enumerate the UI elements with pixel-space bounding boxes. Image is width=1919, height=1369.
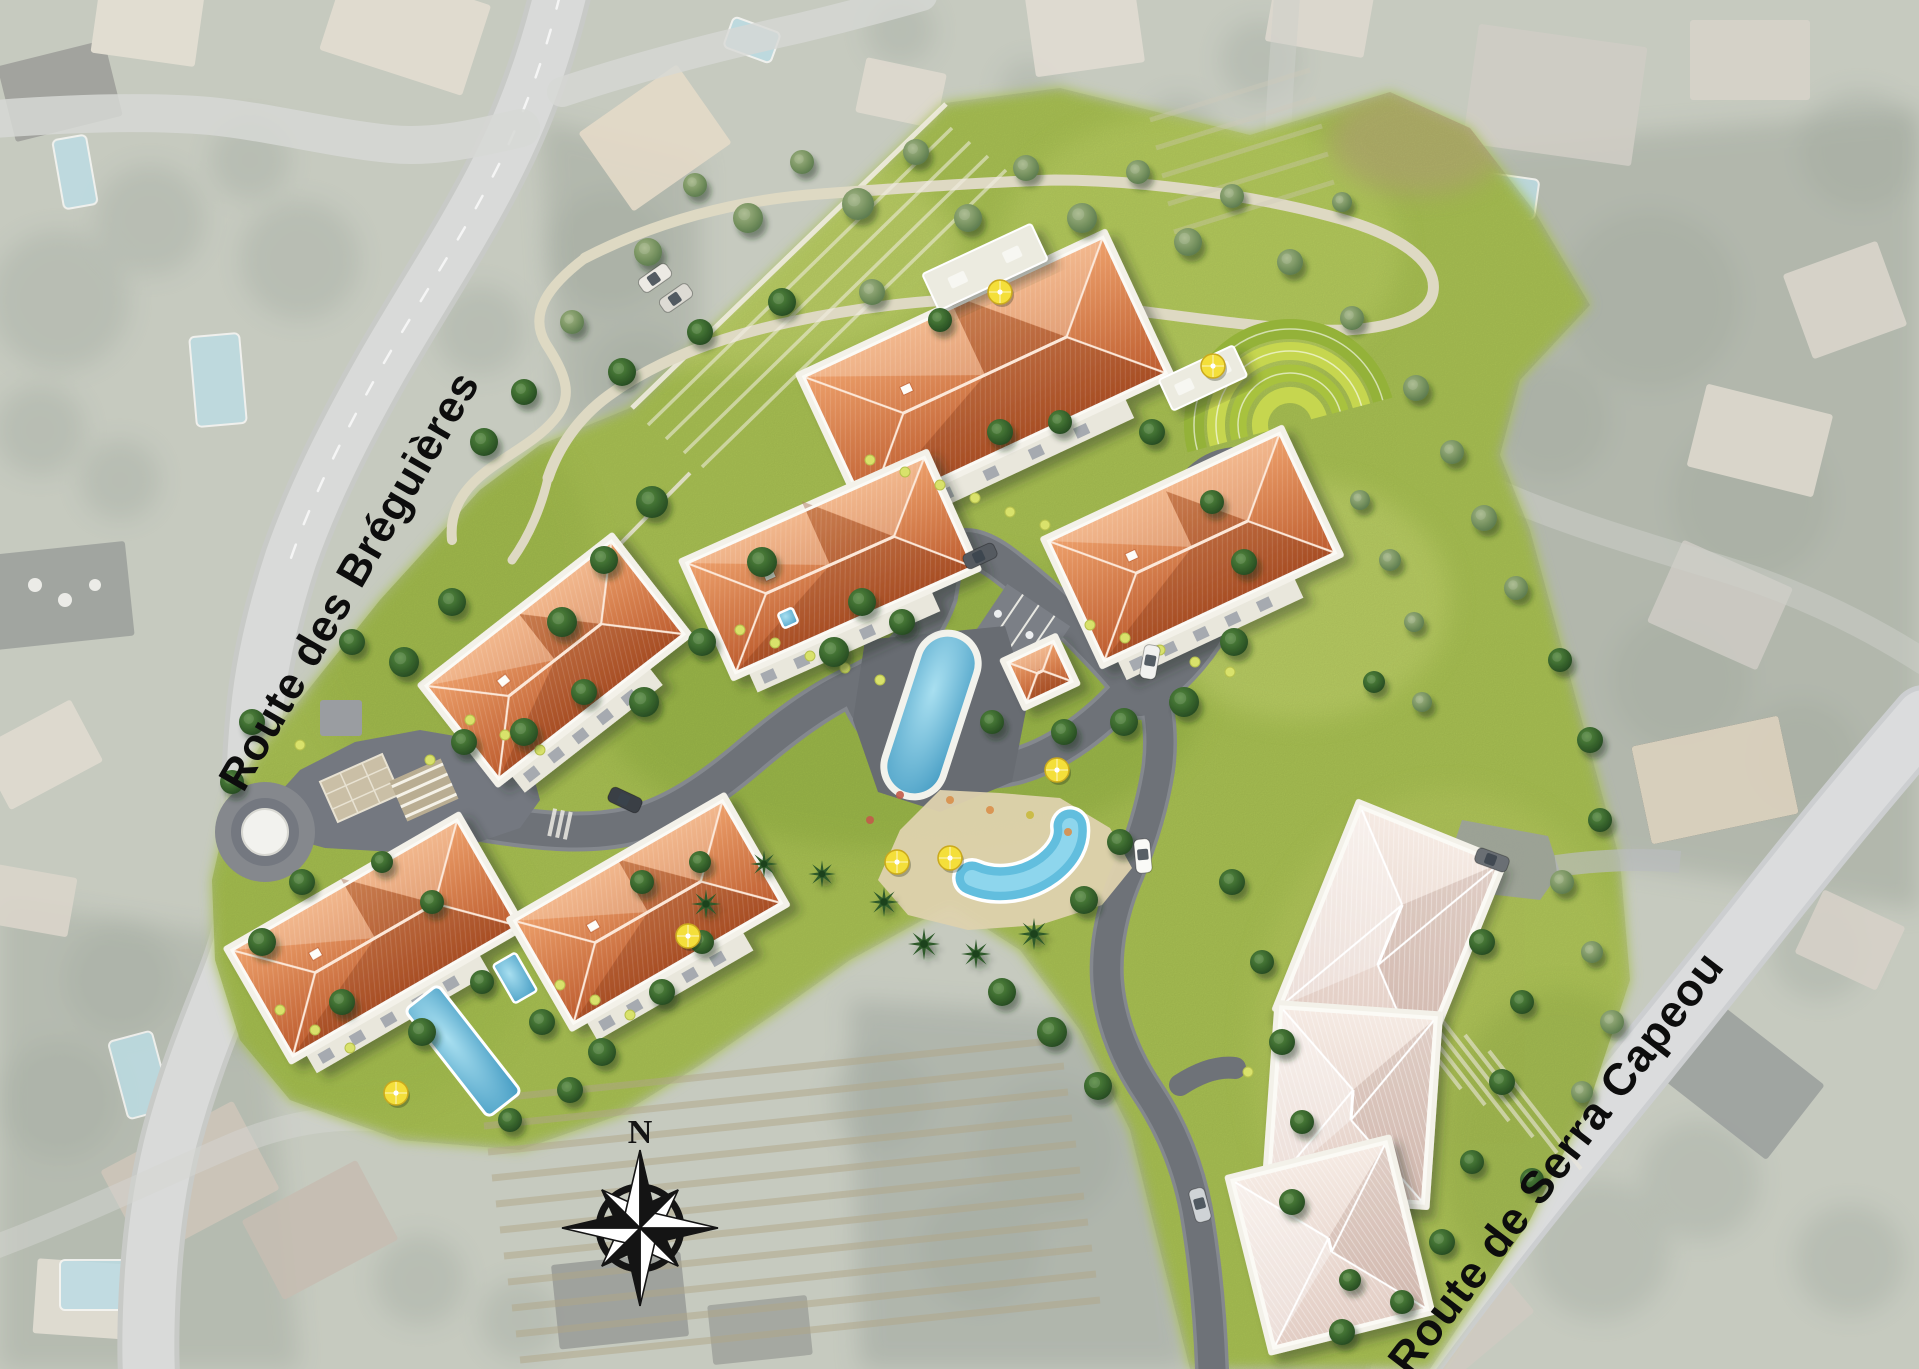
tree-highlight [1224, 188, 1234, 198]
shrub [1190, 657, 1200, 667]
car [1134, 838, 1153, 873]
tree-highlight [1274, 1034, 1284, 1044]
tree-highlight [253, 933, 264, 944]
shrub [345, 1043, 355, 1053]
tree-highlight [375, 855, 384, 864]
tree-highlight [595, 551, 606, 562]
driveway-g-east [1556, 860, 1680, 866]
flower-bed [1064, 828, 1072, 836]
tree-highlight [639, 243, 650, 254]
tree-highlight [1476, 510, 1486, 520]
shrub [625, 1010, 635, 1020]
tree-highlight [1367, 675, 1376, 684]
tree-highlight [984, 714, 994, 724]
tree-highlight [773, 293, 784, 304]
tree-highlight [848, 194, 861, 207]
tree-highlight [1416, 696, 1424, 704]
tree-highlight [534, 1014, 544, 1024]
tree-highlight [738, 208, 750, 220]
shrub [1120, 633, 1130, 643]
tree-highlight [1112, 834, 1122, 844]
shrub [900, 467, 910, 477]
tree-highlight [1582, 732, 1592, 742]
tree-highlight [456, 734, 466, 744]
tree-highlight [1494, 1074, 1504, 1084]
tree-highlight [959, 209, 970, 220]
tree-highlight [1383, 553, 1392, 562]
tree-highlight [294, 874, 304, 884]
tree-highlight [413, 1023, 424, 1034]
tree-highlight [1394, 1294, 1404, 1304]
shrub [735, 625, 745, 635]
shrub [865, 455, 875, 465]
tree-highlight [1514, 994, 1524, 1004]
tree-highlight [1052, 414, 1062, 424]
tree-highlight [692, 324, 702, 334]
tree-highlight [1585, 945, 1594, 954]
tree-highlight [474, 974, 484, 984]
tree-highlight [394, 652, 406, 664]
shrub [805, 651, 815, 661]
site-plan-map: Route des Bréguières Route de Serra Cape… [0, 0, 1919, 1369]
tree-highlight [1354, 494, 1362, 502]
tree-highlight [1018, 160, 1028, 170]
tree-highlight [576, 684, 586, 694]
tree-highlight [1592, 812, 1602, 822]
tree-highlight [1284, 1194, 1294, 1204]
tree-highlight [1174, 692, 1186, 704]
tree-highlight [932, 312, 942, 322]
tree-highlight [687, 177, 697, 187]
tree-highlight [693, 855, 702, 864]
tree-highlight [1282, 254, 1292, 264]
shrub [770, 638, 780, 648]
tree-highlight [654, 984, 664, 994]
compass-north-label: N [628, 1114, 653, 1151]
tree-highlight [1554, 874, 1564, 884]
tree-highlight [1130, 164, 1140, 174]
flower-bed [946, 796, 954, 804]
tree-highlight [1334, 1324, 1344, 1334]
tree-highlight [1144, 424, 1154, 434]
tree-highlight [752, 552, 764, 564]
palm-crown [702, 900, 709, 907]
tree-highlight [515, 723, 526, 734]
shrub [275, 1005, 285, 1015]
shrub [295, 740, 305, 750]
tree-highlight [424, 894, 434, 904]
tree-highlight [443, 593, 454, 604]
tree-highlight [1204, 494, 1214, 504]
tree-highlight [613, 363, 624, 374]
shrub [1225, 667, 1235, 677]
tree-highlight [1294, 1114, 1304, 1124]
tree-highlight [1115, 713, 1126, 724]
palm-crown [920, 940, 928, 948]
shrub [1005, 507, 1015, 517]
tree-highlight [1072, 208, 1084, 220]
tree-highlight [824, 642, 836, 654]
flower-bed [866, 816, 874, 824]
tree-highlight [564, 314, 574, 324]
tree-highlight [1056, 724, 1066, 734]
tree-highlight [853, 593, 864, 604]
tree-highlight [993, 983, 1004, 994]
tree-highlight [693, 633, 704, 644]
shrub [535, 745, 545, 755]
tree-highlight [475, 433, 486, 444]
tree-highlight [908, 144, 918, 154]
tree-highlight [894, 614, 904, 624]
tree-highlight [1254, 954, 1264, 964]
tree-highlight [642, 492, 655, 505]
tree-highlight [1236, 554, 1246, 564]
tree-highlight [634, 874, 644, 884]
tree-highlight [1444, 444, 1454, 454]
tree-highlight [864, 284, 874, 294]
tree-highlight [593, 1043, 604, 1054]
tree-highlight [516, 384, 526, 394]
tree-highlight [562, 1082, 572, 1092]
tree-highlight [1604, 1014, 1614, 1024]
utility-pad [320, 700, 362, 736]
shrub [970, 493, 980, 503]
tree-highlight [1408, 616, 1416, 624]
shrub [590, 995, 600, 1005]
shrub [1243, 1067, 1253, 1077]
palm-crown [761, 861, 768, 868]
tree-highlight [1224, 874, 1234, 884]
tree-highlight [1408, 380, 1418, 390]
tree-highlight [1464, 1154, 1474, 1164]
shrub [425, 755, 435, 765]
shrub [500, 730, 510, 740]
tree-highlight [1075, 891, 1086, 902]
flower-bed [986, 806, 994, 814]
tree-highlight [1552, 652, 1562, 662]
shrub [310, 1025, 320, 1035]
palm-crown [1030, 930, 1038, 938]
roundabout-island [242, 809, 288, 855]
palm-crown [819, 871, 826, 878]
tree-highlight [1042, 1022, 1054, 1034]
palm-crown [880, 898, 887, 905]
shrub [555, 980, 565, 990]
tree-highlight [634, 692, 646, 704]
tree-highlight [1344, 310, 1354, 320]
shrub [1085, 620, 1095, 630]
shrub [935, 480, 945, 490]
tree-highlight [552, 612, 564, 624]
tree-highlight [502, 1112, 512, 1122]
shrub [875, 675, 885, 685]
tree-highlight [1225, 633, 1236, 644]
tree-highlight [1434, 1234, 1444, 1244]
tree-highlight [1343, 1273, 1352, 1282]
tree-highlight [1336, 196, 1344, 204]
shrub [465, 715, 475, 725]
tree-highlight [794, 154, 804, 164]
tree-highlight [992, 424, 1002, 434]
tree-highlight [1508, 580, 1518, 590]
flower-bed [896, 791, 904, 799]
flower-bed [1026, 811, 1034, 819]
masterplan-canvas: Route des Bréguières Route de Serra Cape… [0, 0, 1919, 1369]
tree-highlight [1179, 233, 1190, 244]
tree-highlight [334, 994, 344, 1004]
tree-highlight [1474, 934, 1484, 944]
shrub [1040, 520, 1050, 530]
tree-highlight [1089, 1077, 1100, 1088]
palm-crown [972, 950, 979, 957]
